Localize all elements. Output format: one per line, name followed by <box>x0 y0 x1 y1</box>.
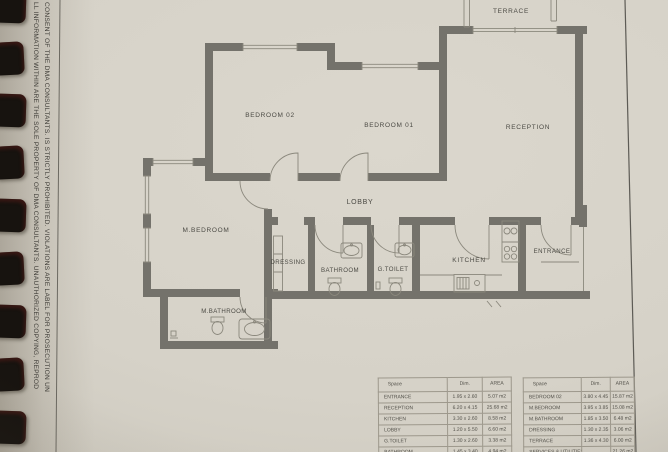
room-label-bedroom02: BEDROOM 02 <box>245 112 295 119</box>
table-row: M.BEDROOM 3.95 x 3.85 15.08 m2 <box>523 402 634 414</box>
cell-area: 15.87 m2 <box>611 391 635 402</box>
table-row: SERVICES & UTILITIES 21.26 m2 <box>524 446 635 452</box>
cell-area: 5.07 m2 <box>483 391 512 402</box>
room-label-mbathroom: M.BATHROOM <box>201 308 247 315</box>
table-row: M.BATHROOM 1.85 x 3.50 6.48 m2 <box>523 413 634 425</box>
cell-area: 15.08 m2 <box>611 402 635 413</box>
binder-tab <box>0 410 27 444</box>
window <box>243 43 297 51</box>
fixtures <box>170 221 519 339</box>
cell-dim: 3.30 x 2.60 <box>447 413 483 424</box>
column-header-dim: Dim. <box>447 377 483 391</box>
column-header-space: Space <box>378 377 447 391</box>
cell-area: 6.48 m2 <box>611 413 635 424</box>
door-arc-bedroom02 <box>270 153 298 181</box>
cell-space: KITCHEN <box>378 413 447 424</box>
window <box>153 158 193 166</box>
cell-dim: 1.45 x 3.40 <box>447 446 483 452</box>
cell-dim: 1.20 x 5.50 <box>447 424 483 435</box>
window <box>143 228 151 262</box>
cell-space: M.BEDROOM <box>523 402 581 413</box>
cell-area: 8.58 m2 <box>483 413 512 424</box>
room-label-dressing: DRESSING <box>270 259 305 266</box>
binder-tab <box>0 145 25 179</box>
cell-dim: 1.95 x 2.60 <box>447 391 483 402</box>
cell-area: 25.68 m2 <box>483 402 512 413</box>
room-label-bathroom: BATHROOM <box>321 267 359 274</box>
binder-tab <box>0 0 27 24</box>
cell-space: G.TOILET <box>379 435 448 446</box>
room-label-terrace: TERRACE <box>493 8 529 15</box>
cell-dim: 1.36 x 4.30 <box>581 435 611 446</box>
sink-icon-gtoilet <box>395 243 414 257</box>
sink-icon-bathroom <box>341 243 362 258</box>
cell-space: BEDROOM 02 <box>523 391 581 402</box>
cell-space: SERVICES & UTILITIES <box>524 446 582 452</box>
areas-table-left: Space Dim. AREA ENTRANCE 1.95 x 2.60 5.0… <box>378 377 513 452</box>
terrace-rail <box>551 0 557 21</box>
cell-area: 4.94 m2 <box>483 446 512 452</box>
door-arc-bathroom <box>315 225 343 253</box>
floor-drain-icon <box>376 282 380 289</box>
cell-dim: 1.30 x 2.35 <box>581 424 611 435</box>
cell-area: 3.06 m2 <box>611 424 635 435</box>
room-labels: TERRACE BEDROOM 02 BEDROOM 01 RECEPTION … <box>182 8 570 315</box>
terrace-glazed-door <box>473 26 557 34</box>
table-row: DRESSING 1.30 x 2.35 3.06 m2 <box>524 424 635 436</box>
disclaimer-text-line2: CONSENT OF THE DMA CONSULTANTS. IS STRIC… <box>43 2 50 452</box>
cell-dim: 1.85 x 3.50 <box>581 413 611 424</box>
cell-space: LOBBY <box>379 424 448 435</box>
window <box>362 62 418 70</box>
cell-space: TERRACE <box>524 435 582 446</box>
binder-tab <box>0 41 25 75</box>
table-row: BEDROOM 02 3.80 x 4.45 15.87 m2 <box>523 391 634 403</box>
cell-dim: 1.30 x 2.60 <box>447 435 483 446</box>
room-label-gtoilet: G.TOILET <box>378 266 409 273</box>
column-header-dim: Dim. <box>581 377 611 391</box>
door-arc-mbedroom <box>240 181 268 209</box>
cell-area: 6.60 m2 <box>483 424 512 435</box>
table-header-row: Space Dim. AREA <box>523 377 634 392</box>
cell-space: RECEPTION <box>378 402 447 413</box>
room-label-reception: RECEPTION <box>506 124 550 131</box>
binder-tab <box>0 251 25 285</box>
terrace-rail <box>464 0 470 27</box>
cell-space: ENTRANCE <box>378 391 447 402</box>
binder-tab <box>0 93 27 127</box>
window <box>143 176 151 214</box>
dimension-tick <box>487 301 501 307</box>
room-label-lobby: LOBBY <box>347 199 374 206</box>
table-row: BATHROOM 1.45 x 3.40 4.94 m2 <box>379 446 512 452</box>
toilet-icon-mbathroom <box>211 317 224 335</box>
door-arc-bedroom01 <box>340 153 368 181</box>
stove-icon <box>502 221 519 262</box>
cell-space: BATHROOM <box>379 446 448 452</box>
binder-tab <box>0 198 27 232</box>
cell-space: DRESSING <box>524 424 582 435</box>
table-header-row: Space Dim. AREA <box>378 377 511 392</box>
scanned-floor-plan-page: TERRACE BEDROOM 02 BEDROOM 01 RECEPTION … <box>0 0 668 452</box>
cell-dim: 3.95 x 3.85 <box>581 402 611 413</box>
cell-area: 6.00 m2 <box>611 435 635 446</box>
cell-area: 21.26 m2 <box>611 446 635 452</box>
column-header-area: AREA <box>610 377 634 391</box>
cell-dim: 6.20 x 4.15 <box>447 402 483 413</box>
cell-area: 3.38 m2 <box>483 435 512 446</box>
kitchen-sink-icon <box>454 275 485 293</box>
column-header-space: Space <box>523 377 581 391</box>
room-label-entrance: ENTRANCE <box>534 248 571 255</box>
binder-tab <box>0 357 25 391</box>
column-header-area: AREA <box>483 377 512 391</box>
room-label-kitchen: KITCHEN <box>452 257 485 264</box>
door-arc-kitchen <box>455 225 489 259</box>
room-label-bedroom01: BEDROOM 01 <box>364 122 414 129</box>
cell-dim: 3.80 x 4.45 <box>581 391 611 402</box>
areas-table-right: Space Dim. AREA BEDROOM 02 3.80 x 4.45 1… <box>523 377 636 452</box>
walls <box>143 26 590 349</box>
disclaimer-text-line1: LL INFORMATION WITHIN ARE THE SOLE PROPE… <box>32 2 39 452</box>
room-label-mbedroom: M.BEDROOM <box>182 227 229 234</box>
cell-dim <box>581 446 611 452</box>
floor-drain-icon <box>170 331 178 338</box>
cell-space: M.BATHROOM <box>523 413 581 424</box>
binder-tab <box>0 304 27 338</box>
table-row: TERRACE 1.36 x 4.30 6.00 m2 <box>524 435 635 447</box>
